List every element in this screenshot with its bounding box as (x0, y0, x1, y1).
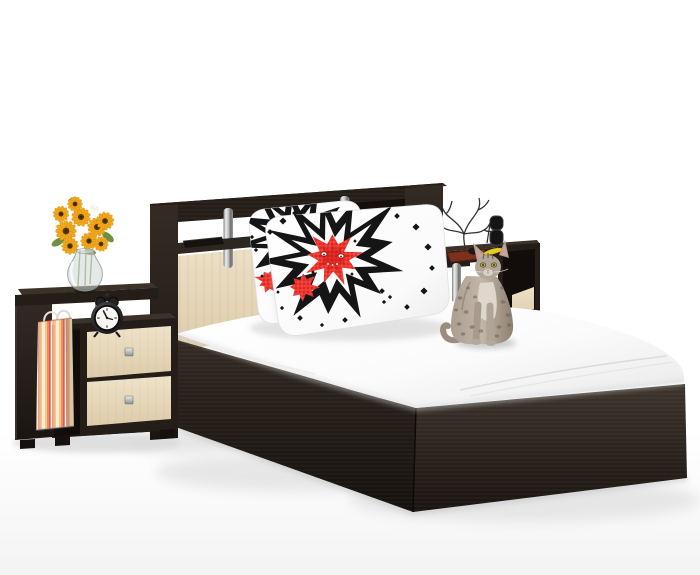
bedroom-product-photo: Bedroom furniture set on a white studio … (0, 0, 700, 575)
striped-gift-bag (36, 311, 74, 430)
left-nightstand-foot-2 (55, 436, 70, 446)
drawer-bottom-handle (125, 396, 133, 404)
headboard-post-left (224, 208, 234, 268)
left-nightstand-foot-1 (20, 439, 35, 449)
drawer-top-handle (125, 348, 133, 356)
left-nightstand-foot-3 (160, 429, 175, 439)
